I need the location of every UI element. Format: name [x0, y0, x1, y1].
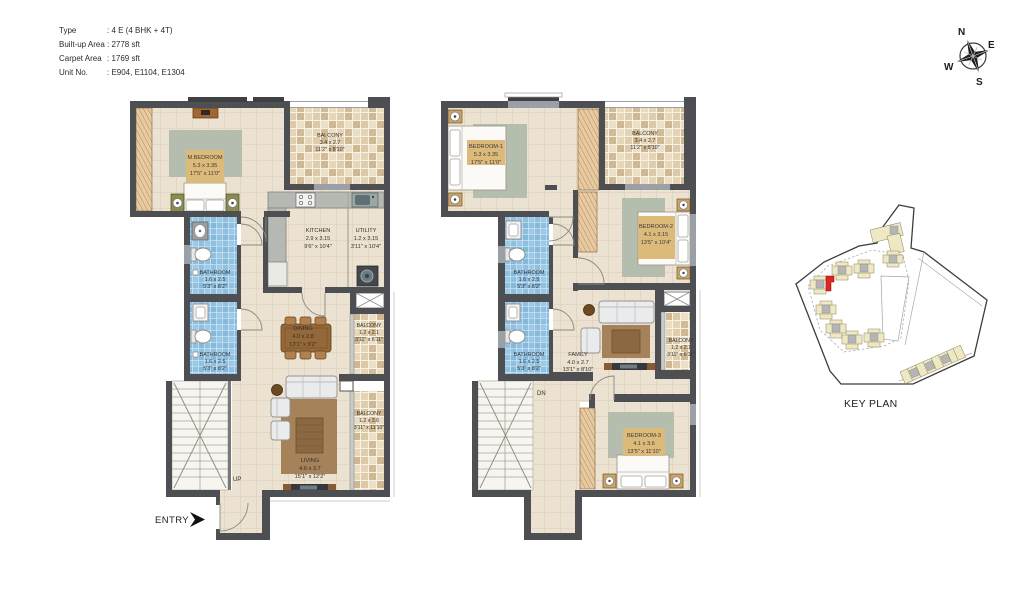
svg-text:3'11" x 11'10": 3'11" x 11'10"	[354, 425, 385, 431]
svg-text:1.6 x 2.5: 1.6 x 2.5	[519, 277, 540, 283]
svg-text:13'5" x 10'4": 13'5" x 10'4"	[641, 240, 672, 246]
svg-text:1.2 x 3.6: 1.2 x 3.6	[359, 418, 379, 424]
svg-text:: 4 E (4 BHK + 4T): : 4 E (4 BHK + 4T)	[107, 26, 173, 35]
svg-text:1.2 x 2.1: 1.2 x 2.1	[671, 345, 691, 351]
svg-text:BALCONY: BALCONY	[632, 131, 658, 137]
svg-text:BALCONY: BALCONY	[317, 133, 343, 139]
svg-text:13'5" x 11'10": 13'5" x 11'10"	[627, 449, 660, 455]
svg-text:KITCHEN: KITCHEN	[306, 228, 331, 234]
svg-text:5'3" x 8'2": 5'3" x 8'2"	[517, 284, 541, 290]
svg-text:DINING: DINING	[293, 326, 313, 332]
svg-text:17'5" x 11'0": 17'5" x 11'0"	[190, 171, 220, 177]
svg-text:FAMILY: FAMILY	[568, 352, 588, 358]
svg-text:3'11" x 6'11": 3'11" x 6'11"	[355, 337, 383, 343]
svg-text:5'3" x 8'2": 5'3" x 8'2"	[203, 284, 227, 290]
svg-text:Carpet Area: Carpet Area	[59, 54, 102, 63]
svg-text:11'2" x 8'10": 11'2" x 8'10"	[630, 145, 659, 151]
svg-text:LIVING: LIVING	[301, 458, 319, 464]
svg-text:BEDROOM-2: BEDROOM-2	[639, 224, 673, 230]
svg-text:4.0 x 2.8: 4.0 x 2.8	[292, 334, 313, 340]
svg-text:1.6 x 2.5: 1.6 x 2.5	[519, 359, 540, 365]
svg-text:BEDROOM-3: BEDROOM-3	[627, 433, 661, 439]
svg-text:4.6 x 3.7: 4.6 x 3.7	[299, 466, 320, 472]
svg-text:DN: DN	[537, 391, 546, 397]
svg-text:UP: UP	[233, 477, 241, 483]
svg-text:1.2 x 2.1: 1.2 x 2.1	[359, 330, 379, 336]
svg-text:Unit No.: Unit No.	[59, 68, 88, 77]
svg-text:BALCONY: BALCONY	[357, 323, 382, 329]
svg-text:BATHROOM: BATHROOM	[514, 352, 545, 358]
svg-text:M.BEDROOM: M.BEDROOM	[187, 155, 222, 161]
svg-text:15'1" x 12'2": 15'1" x 12'2"	[295, 474, 326, 480]
svg-text:: 2778 sft: : 2778 sft	[107, 40, 141, 49]
svg-text:2.9 x 3.15: 2.9 x 3.15	[306, 236, 331, 242]
svg-text:BALCONY: BALCONY	[357, 411, 382, 417]
svg-text:1.6 x 2.5: 1.6 x 2.5	[205, 359, 226, 365]
svg-text:5'3" x 8'2": 5'3" x 8'2"	[517, 366, 541, 372]
svg-text:17'5" x 11'0": 17'5" x 11'0"	[471, 160, 501, 166]
svg-text:5.3 x 3.35: 5.3 x 3.35	[193, 163, 218, 169]
svg-text:Built-up Area: Built-up Area	[59, 40, 105, 49]
svg-text:4.0 x 2.7: 4.0 x 2.7	[567, 360, 588, 366]
svg-text:E: E	[988, 40, 995, 51]
svg-text:S: S	[976, 77, 983, 88]
svg-text:Type: Type	[59, 26, 77, 35]
svg-text:5'3" x 8'2": 5'3" x 8'2"	[203, 366, 227, 372]
svg-text:W: W	[944, 62, 954, 73]
svg-text:BATHROOM: BATHROOM	[200, 270, 231, 276]
svg-text:BATHROOM: BATHROOM	[200, 352, 231, 358]
svg-text:4.1 x 3.6: 4.1 x 3.6	[633, 441, 654, 447]
svg-text:N: N	[958, 27, 965, 38]
svg-text:1.6 x 2.5: 1.6 x 2.5	[205, 277, 226, 283]
svg-text:3.4 x 2.7: 3.4 x 2.7	[635, 138, 656, 144]
svg-text:1.2 x 3.15: 1.2 x 3.15	[354, 236, 379, 242]
svg-text:11'2" x 8'10": 11'2" x 8'10"	[315, 147, 344, 153]
svg-text:ENTRY: ENTRY	[155, 515, 189, 526]
svg-text:3'11" x 10'4": 3'11" x 10'4"	[351, 244, 381, 250]
svg-text:5.3 x 3.35: 5.3 x 3.35	[474, 152, 499, 158]
svg-text:9'6" x 10'4": 9'6" x 10'4"	[304, 244, 332, 250]
svg-text:UTILITY: UTILITY	[356, 228, 377, 234]
svg-text:: 1769 sft: : 1769 sft	[107, 54, 141, 63]
svg-text:BATHROOM: BATHROOM	[514, 270, 545, 276]
svg-text:13'1" x 9'2": 13'1" x 9'2"	[289, 342, 317, 348]
svg-text:3.4 x 2.7: 3.4 x 2.7	[320, 140, 341, 146]
svg-text:: E904, E1104, E1304: : E904, E1104, E1304	[107, 68, 185, 77]
svg-text:KEY PLAN: KEY PLAN	[844, 398, 898, 410]
svg-text:BEDROOM-1: BEDROOM-1	[469, 144, 503, 150]
svg-text:4.1 x 3.15: 4.1 x 3.15	[644, 232, 669, 238]
svg-text:BALCONY: BALCONY	[669, 338, 694, 344]
svg-text:3'11" x 6'11": 3'11" x 6'11"	[667, 352, 695, 358]
